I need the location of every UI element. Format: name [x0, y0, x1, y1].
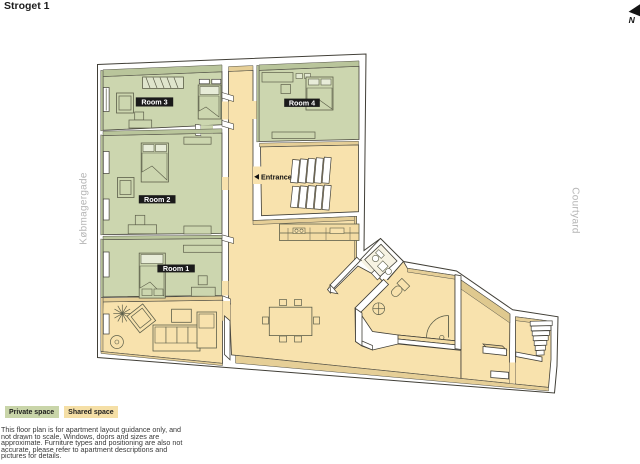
- svg-text:Entrance: Entrance: [261, 173, 292, 182]
- svg-text:Room 1: Room 1: [163, 264, 189, 273]
- svg-text:Room 4: Room 4: [289, 98, 315, 107]
- svg-text:Room 2: Room 2: [144, 195, 170, 204]
- svg-text:Room 3: Room 3: [141, 98, 167, 107]
